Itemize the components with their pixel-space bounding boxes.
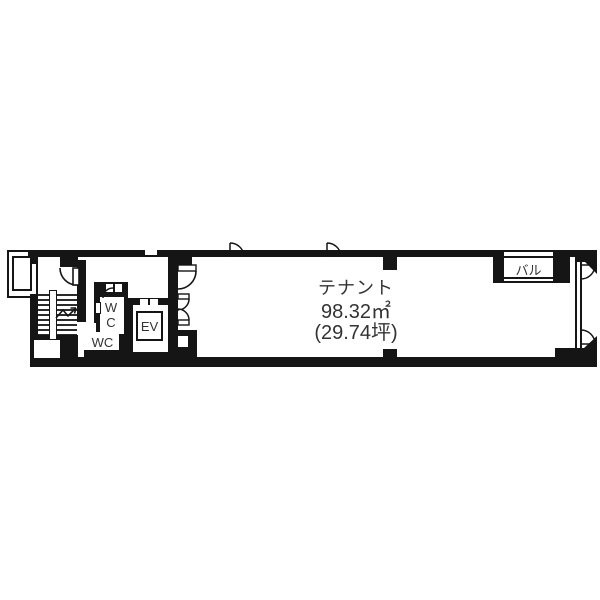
window-swing-icon — [230, 243, 244, 257]
floorplan: テナント 98.32㎡ (29.74坪) バル WC WC EV — [0, 0, 600, 600]
door-leaf-icon — [73, 268, 79, 285]
window-swing-icon — [327, 243, 341, 257]
door-swing-icon — [178, 309, 189, 320]
door-leaf-icon — [178, 265, 196, 271]
door-swing-icon — [103, 288, 113, 298]
door-leaf-icon — [178, 320, 189, 325]
door-swing-icon — [178, 271, 196, 289]
stair-direction-arrow-icon — [56, 308, 76, 318]
door-swing-icon — [178, 299, 189, 310]
door-leaf-icon — [178, 294, 189, 299]
plan-symbols — [0, 0, 600, 600]
